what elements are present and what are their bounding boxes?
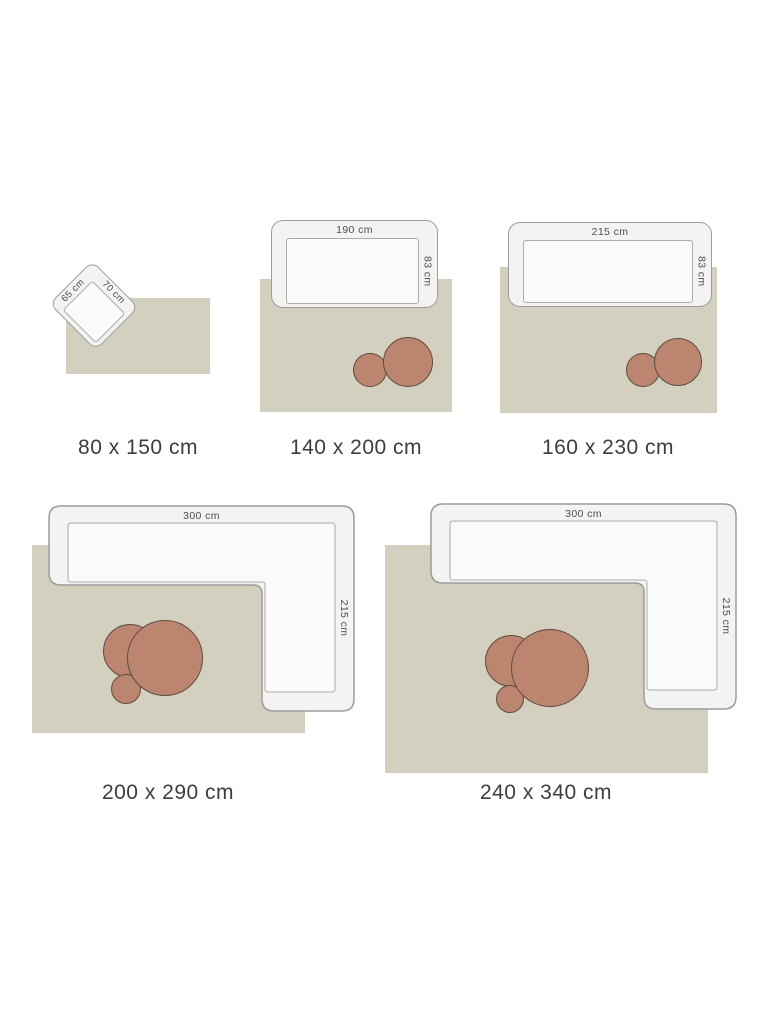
sofa-depth-label: 83 cm (696, 256, 707, 287)
corner-sofa-seat (68, 523, 335, 692)
size-caption-240x340: 240 x 340 cm (436, 781, 656, 804)
side-table-small (353, 353, 387, 387)
corner-sofa-depth-label: 215 cm (338, 600, 350, 637)
sofa-width-label: 190 cm (272, 225, 437, 236)
size-caption-80x150: 80 x 150 cm (28, 436, 248, 459)
corner-sofa-240x340: 300 cm 215 cm (431, 504, 736, 709)
sofa-right-armrest: 83 cm (418, 238, 437, 304)
size-caption-160x230: 160 x 230 cm (498, 436, 718, 459)
size-caption-200x290: 200 x 290 cm (58, 781, 278, 804)
sofa-depth-label: 83 cm (422, 256, 433, 287)
sofa-seat (523, 240, 693, 303)
side-table-large (383, 337, 433, 387)
corner-sofa-width-label: 300 cm (183, 510, 220, 522)
sofa-width-label: 215 cm (509, 227, 711, 238)
corner-sofa-seat (450, 521, 717, 690)
sofa-160x230: 215 cm 83 cm (508, 222, 712, 307)
corner-sofa-200x290: 300 cm 215 cm (49, 506, 354, 711)
corner-sofa-depth-label: 215 cm (720, 598, 732, 635)
sofa-seat (286, 238, 419, 304)
size-caption-140x200: 140 x 200 cm (246, 436, 466, 459)
side-table-large (654, 338, 702, 386)
corner-sofa-width-label: 300 cm (565, 508, 602, 520)
sofa-right-armrest: 83 cm (692, 240, 711, 303)
sofa-140x200: 190 cm 83 cm (271, 220, 438, 308)
rug-size-guide: 70 cm 65 cm 80 x 150 cm 190 cm 83 cm 140… (0, 0, 768, 1024)
